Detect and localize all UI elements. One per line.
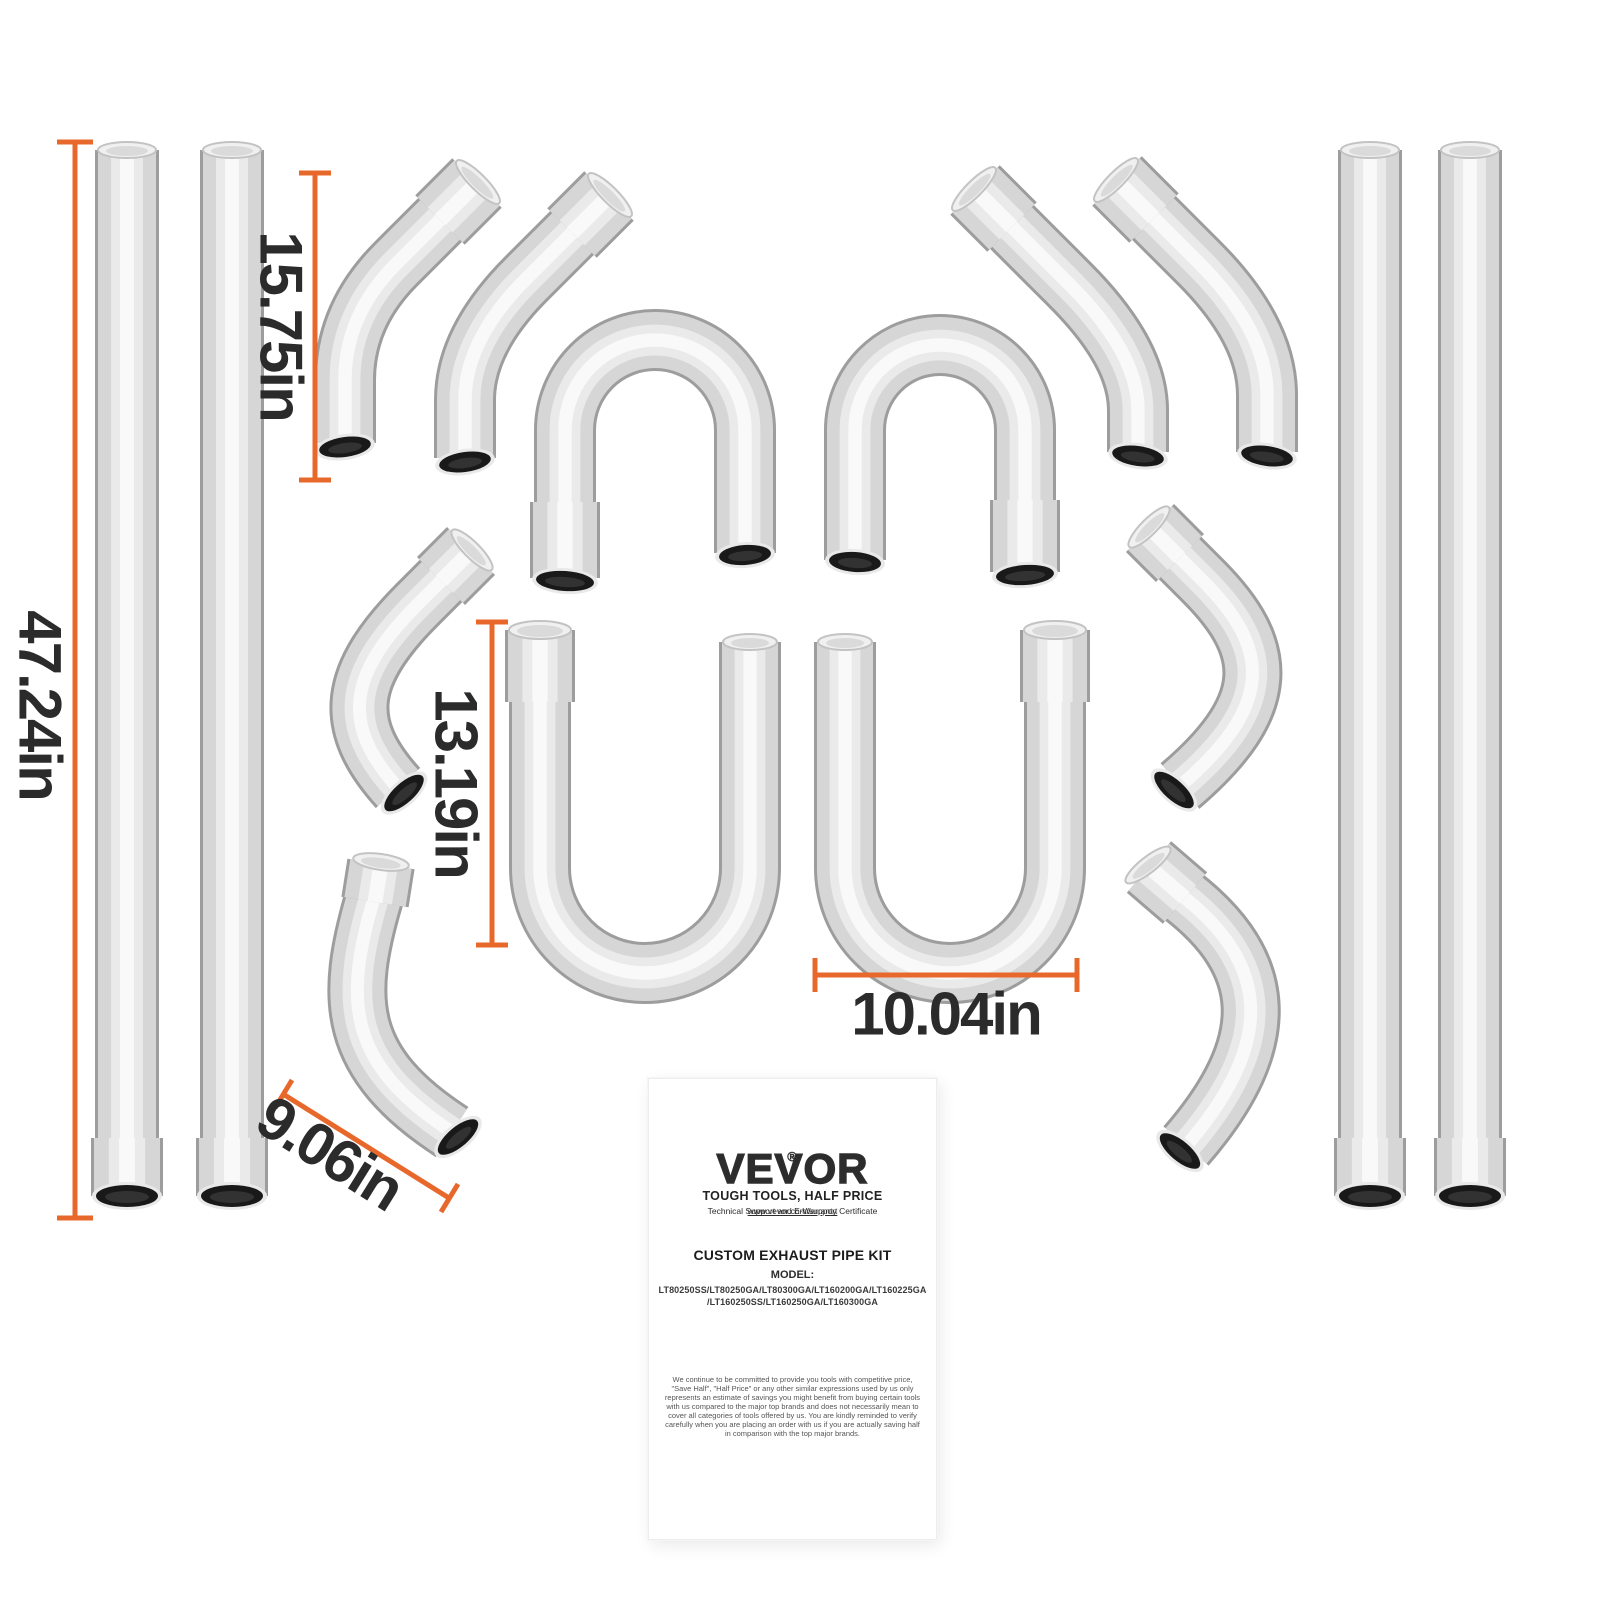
dimension-label-j-bend-height: 13.19in [422,688,491,877]
model-label: MODEL: [649,1269,936,1281]
model-numbers-line1: LT80250SS/LT80250GA/LT80300GA/LT160200GA… [649,1285,936,1295]
elbow-90deg-3 [1124,502,1253,820]
product-info-card: VEVOR® TOUGH TOOLS, HALF PRICE Technical… [648,1078,937,1540]
straight-pipe-1 [92,142,162,1210]
disclaimer-text: We continue to be committed to provide y… [662,1375,923,1438]
dimension-label-straight-pipe: 47.24in [6,610,75,799]
brand-slogan: TOUGH TOOLS, HALF PRICE [649,1189,936,1203]
dimension-label-j-bend-width: 10.04in [851,980,1040,1049]
support-text: Technical Support and E-Warranty Certifi… [649,1206,936,1216]
straight-pipe-3 [1335,142,1405,1210]
u-bend-180deg-1 [531,340,776,596]
kit-title: CUSTOM EXHAUST PIPE KIT [649,1247,936,1263]
product-image: 47.24in 15.75in 13.19in 10.04in 9.06in V… [0,0,1600,1600]
straight-pipe-4 [1435,142,1505,1210]
j-bend-180deg-2 [818,621,1086,973]
dimension-label-elbow-45: 15.75in [247,231,316,420]
model-numbers-line2: /LT160250SS/LT160250GA/LT160300GA [649,1297,936,1307]
support-line: Technical Support and E-Warranty Certifi… [649,1206,936,1216]
brand-name: VEVOR [649,1145,936,1193]
u-bend-180deg-2 [824,345,1059,590]
elbow-90deg-2 [352,850,488,1165]
brand-logo: VEVOR® [649,1145,936,1193]
j-bend-180deg-1 [509,621,777,973]
elbow-90deg-4 [1121,841,1251,1179]
